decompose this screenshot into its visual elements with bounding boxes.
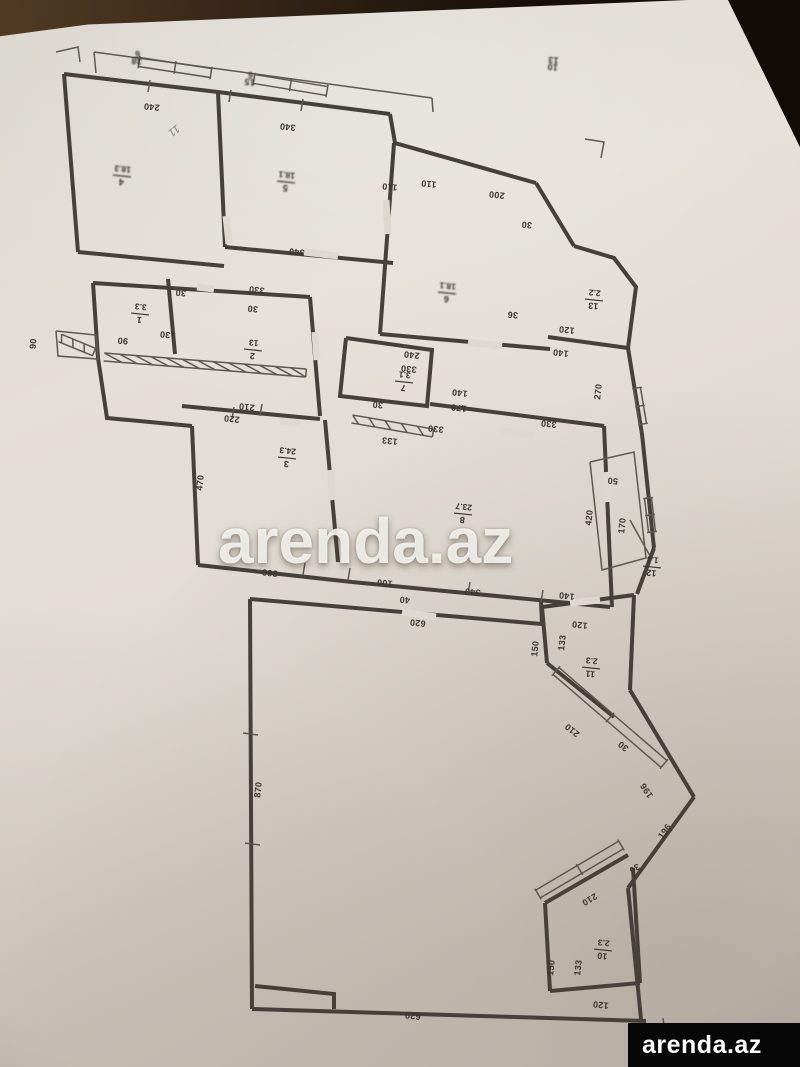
dimension-label: 330	[540, 418, 557, 430]
room-label: 102.3	[593, 937, 613, 962]
dimension-label: 420	[583, 509, 595, 526]
dimension-label: 196	[656, 822, 673, 841]
dimension-label: 133	[381, 435, 398, 447]
dimension-label: 210	[563, 721, 582, 739]
wall	[604, 426, 612, 607]
room-area: 13	[248, 338, 259, 349]
door-opening	[315, 332, 317, 360]
room-number: 6	[443, 294, 449, 304]
fraction-bar	[244, 349, 262, 351]
window-callout: 386	[131, 48, 143, 66]
door-opening	[606, 472, 608, 502]
callout-bottom: 13	[548, 54, 560, 65]
wall	[550, 983, 640, 991]
dimension-label: 110	[381, 181, 397, 193]
dimension-label: 100	[376, 577, 393, 589]
wall	[340, 338, 432, 406]
wall-thin	[243, 733, 258, 735]
dimension-label: 30	[175, 287, 187, 298]
door-opening	[226, 216, 229, 244]
dimension-label: 870	[252, 781, 264, 798]
photo-of-floor-plan: 2403401101102003036120140270330340330303…	[0, 0, 800, 1067]
room-number: 2	[249, 351, 255, 361]
wall	[192, 426, 198, 565]
hatch-edge	[58, 342, 92, 356]
wall-thin	[590, 452, 646, 570]
wall	[250, 599, 542, 624]
dimension-label: 30	[372, 399, 384, 410]
dimension-label: 240	[403, 349, 420, 361]
dimension-label: 330	[427, 423, 444, 435]
window-callout: 1013	[547, 54, 559, 72]
dimension-label: 120	[558, 324, 575, 336]
window-tick	[535, 889, 541, 900]
dimension-label: 340	[288, 246, 305, 258]
room-area: 18.1	[278, 169, 296, 181]
room-area: 2.3	[597, 937, 610, 948]
window-tick	[660, 759, 668, 769]
room-number: 5	[282, 183, 288, 193]
wall-thin	[56, 47, 80, 62]
wall	[630, 690, 694, 797]
dimension-label: 210	[580, 891, 599, 908]
dimension-label: 240	[143, 101, 160, 113]
room-area: 24.3	[279, 445, 297, 457]
handwritten-mark: 11	[166, 122, 182, 139]
room-area: 18.1	[439, 280, 457, 292]
room-label: 418.3	[112, 163, 132, 188]
dimension-label: 340	[464, 586, 481, 598]
wall	[390, 114, 536, 183]
dimension-label: 50	[607, 475, 619, 486]
wall-thin	[585, 139, 604, 158]
room-number: 10	[597, 950, 608, 961]
dimension-label: 90	[117, 335, 129, 346]
wall	[547, 663, 614, 717]
window-tick	[618, 840, 624, 851]
dimension-label: 133	[572, 959, 584, 976]
door-opening	[468, 342, 502, 346]
wall	[78, 252, 224, 266]
dimension-label: 170	[450, 402, 467, 414]
wall	[98, 358, 192, 426]
dimension-label: 40	[399, 594, 411, 605]
wall-thin	[432, 98, 433, 112]
room-label: 618.1	[437, 280, 457, 305]
room-area: 3.3	[134, 301, 147, 312]
dimension-label: 470	[194, 474, 206, 491]
wall	[252, 1009, 646, 1021]
hatch-tick	[306, 369, 307, 377]
room-number: 3	[283, 459, 289, 469]
room-area: 2.3	[585, 655, 598, 666]
room-number: 1	[136, 315, 142, 325]
callout-bottom: 6	[247, 70, 253, 81]
room-label: 112.3	[581, 655, 601, 680]
dimension-label: 340	[279, 121, 296, 133]
wall	[250, 599, 252, 1009]
room-area: 18.3	[114, 163, 132, 175]
room-label: 132.2	[584, 287, 604, 312]
room-number: 11	[585, 668, 596, 679]
dimension-label: 90	[27, 338, 38, 350]
wall	[255, 986, 334, 1009]
arenda-logo: arenda.az	[628, 1023, 800, 1067]
watermark-text: arenda.az	[218, 504, 513, 578]
wall	[542, 607, 547, 663]
room-number: 4	[118, 177, 124, 187]
dimension-label: 140	[558, 590, 575, 602]
room-label: 13.3	[130, 301, 150, 326]
dimension-label: 170	[616, 517, 628, 534]
wall	[536, 183, 574, 246]
dimension-label: 30	[616, 739, 631, 753]
wall	[380, 143, 394, 334]
dimension-label: 200	[488, 189, 505, 201]
hatch-edge	[62, 334, 96, 348]
dimension-label: 133	[556, 634, 568, 651]
dimension-label: 210	[238, 401, 255, 413]
room-label: 213	[243, 337, 263, 362]
wall	[168, 279, 175, 354]
dimension-label: 150	[545, 959, 557, 976]
dimension-label: 270	[592, 383, 604, 400]
dimension-label: 330	[248, 284, 265, 296]
dimension-label: 130	[159, 329, 176, 341]
dimension-label: 220	[223, 413, 240, 425]
room-area: 3.1	[398, 369, 411, 380]
room-area: 1.4	[646, 554, 659, 565]
room-number: 12	[646, 567, 657, 578]
room-label: 518.1	[276, 169, 296, 194]
wall	[545, 903, 550, 991]
door-opening	[330, 470, 333, 500]
hatch-tick	[92, 348, 95, 355]
wall-thin	[245, 843, 260, 845]
wall	[64, 74, 390, 114]
dimension-label: 120	[571, 619, 588, 631]
dimension-label: 196	[638, 781, 655, 800]
dimension-label: 36	[507, 309, 519, 320]
room-number: 13	[588, 300, 599, 311]
dimension-label: 30	[247, 303, 259, 314]
dimension-label: 150	[529, 640, 541, 657]
dimension-label: 620	[409, 617, 426, 629]
door-opening	[197, 287, 214, 289]
wall-thin	[94, 52, 96, 73]
window-tick	[576, 864, 582, 875]
door-opening	[402, 612, 436, 617]
dimension-label: 30	[521, 219, 533, 230]
room-area: 2.2	[588, 287, 601, 298]
hatch-edge	[353, 415, 434, 429]
door-opening	[304, 252, 338, 256]
room-number: 7	[400, 383, 406, 393]
dimension-label: 120	[592, 999, 609, 1011]
wall-thin	[148, 80, 150, 92]
wall	[628, 797, 694, 888]
callout-bottom: 6	[134, 49, 140, 60]
dimension-label: 620	[404, 1010, 421, 1022]
wall	[630, 595, 634, 690]
dimension-label: 140	[451, 387, 468, 399]
dimension-label: 140	[552, 347, 569, 359]
door-opening	[500, 430, 534, 435]
dimension-label: 110	[420, 178, 436, 190]
room-label: 73.1	[394, 369, 414, 394]
door-opening	[280, 421, 300, 423]
wall	[64, 74, 78, 252]
room-label: 324.3	[277, 445, 297, 470]
door-opening	[386, 200, 388, 234]
